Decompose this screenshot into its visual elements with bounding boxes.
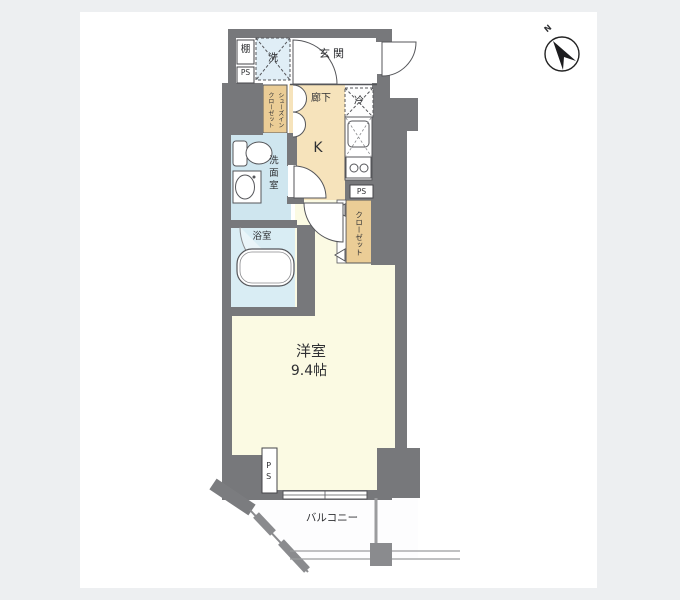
wall [372, 98, 418, 131]
wall [228, 29, 236, 85]
front-door-arc [382, 42, 416, 76]
north-arrow-icon [545, 37, 579, 71]
wall [222, 315, 232, 455]
wall [297, 225, 315, 315]
room-label-washroom: 洗面室 [266, 147, 277, 201]
floor-plan-drawing [0, 0, 680, 600]
floor-plan: 棚 PS 洗 玄関 廊下 冷 K シューズイン クローゼット 洗面室 浴室 クロ… [0, 0, 680, 600]
room-label-entrance: 玄関 [311, 48, 355, 61]
room-label-shoe-closet: クローゼット [266, 89, 273, 131]
room-label-hallway: 廊下 [299, 93, 343, 105]
room-label-shoe-closet: シューズイン [276, 89, 283, 131]
pipe-space-label: PS [264, 452, 273, 492]
wall [222, 83, 263, 135]
balcony-column [370, 543, 392, 566]
bathtub-icon [237, 249, 294, 286]
wall [222, 307, 315, 316]
room-label-closet: クローゼット [354, 206, 363, 260]
wall [228, 29, 392, 38]
wall [287, 133, 297, 166]
wash-basin-icon [233, 171, 261, 203]
stove-icon [346, 157, 371, 178]
shelf-label: 棚 [236, 45, 255, 56]
wall [376, 29, 392, 42]
fridge-label: 冷 [349, 96, 369, 108]
washer-label: 洗 [263, 53, 283, 65]
room-label-main-room: 洋室 [281, 343, 341, 360]
kitchen-sink-icon [348, 121, 369, 147]
pipe-space-label: PS [350, 188, 373, 197]
room-label-bathroom: 浴室 [242, 232, 282, 243]
wall [377, 448, 420, 498]
window [283, 491, 367, 499]
room-label-balcony: バルコニー [292, 512, 372, 524]
wall [395, 131, 407, 448]
room-size-main-room: 9.4帖 [279, 363, 339, 379]
wall [222, 220, 297, 228]
room-label-kitchen: K [306, 140, 330, 156]
pipe-space-label: PS [236, 69, 255, 78]
